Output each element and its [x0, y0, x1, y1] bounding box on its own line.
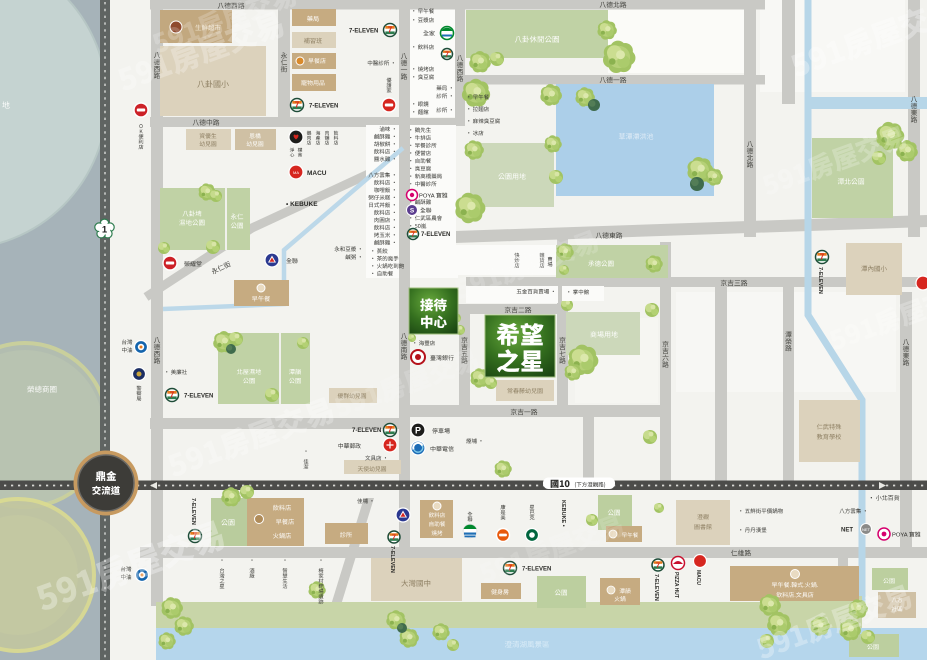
svg-text:7: 7 [392, 533, 396, 542]
svg-text:7-ELEVEN: 7-ELEVEN [190, 498, 196, 525]
svg-text:7: 7 [445, 51, 449, 58]
svg-text:7-ELEVEN: 7-ELEVEN [389, 546, 395, 573]
svg-text:7: 7 [388, 426, 393, 435]
svg-text:NET: NET [841, 528, 853, 534]
svg-text:7: 7 [820, 253, 825, 262]
svg-text:KEBUKE •: KEBUKE • [560, 500, 566, 527]
svg-text:S: S [410, 208, 415, 215]
svg-text:MACU: MACU [695, 570, 701, 585]
svg-text:7: 7 [295, 101, 300, 110]
svg-text:7: 7 [170, 391, 175, 400]
svg-text:7-ELEVEN: 7-ELEVEN [352, 428, 381, 434]
svg-text:POYA: POYA [892, 533, 908, 539]
svg-text:7-ELEVEN: 7-ELEVEN [349, 29, 378, 35]
svg-text:POYA: POYA [419, 194, 435, 200]
svg-text:PIZZA HUT: PIZZA HUT [673, 572, 679, 598]
svg-text:P: P [415, 426, 421, 436]
svg-text:• KEBUKE: • KEBUKE [286, 201, 318, 208]
svg-text:7: 7 [656, 561, 660, 570]
svg-text:NET: NET [862, 527, 871, 532]
svg-text:MA: MA [293, 170, 299, 175]
svg-text:MACU: MACU [307, 170, 327, 177]
svg-text:7: 7 [411, 231, 415, 238]
svg-text:7-ELEVEN: 7-ELEVEN [653, 574, 659, 601]
svg-text:1: 1 [102, 225, 108, 236]
svg-text:7-ELEVEN: 7-ELEVEN [184, 394, 213, 400]
svg-text:7-ELEVEN: 7-ELEVEN [421, 232, 450, 238]
svg-text:7-ELEVEN: 7-ELEVEN [817, 267, 823, 294]
svg-text:7-ELEVEN: 7-ELEVEN [309, 104, 338, 110]
svg-text:7: 7 [388, 26, 393, 35]
